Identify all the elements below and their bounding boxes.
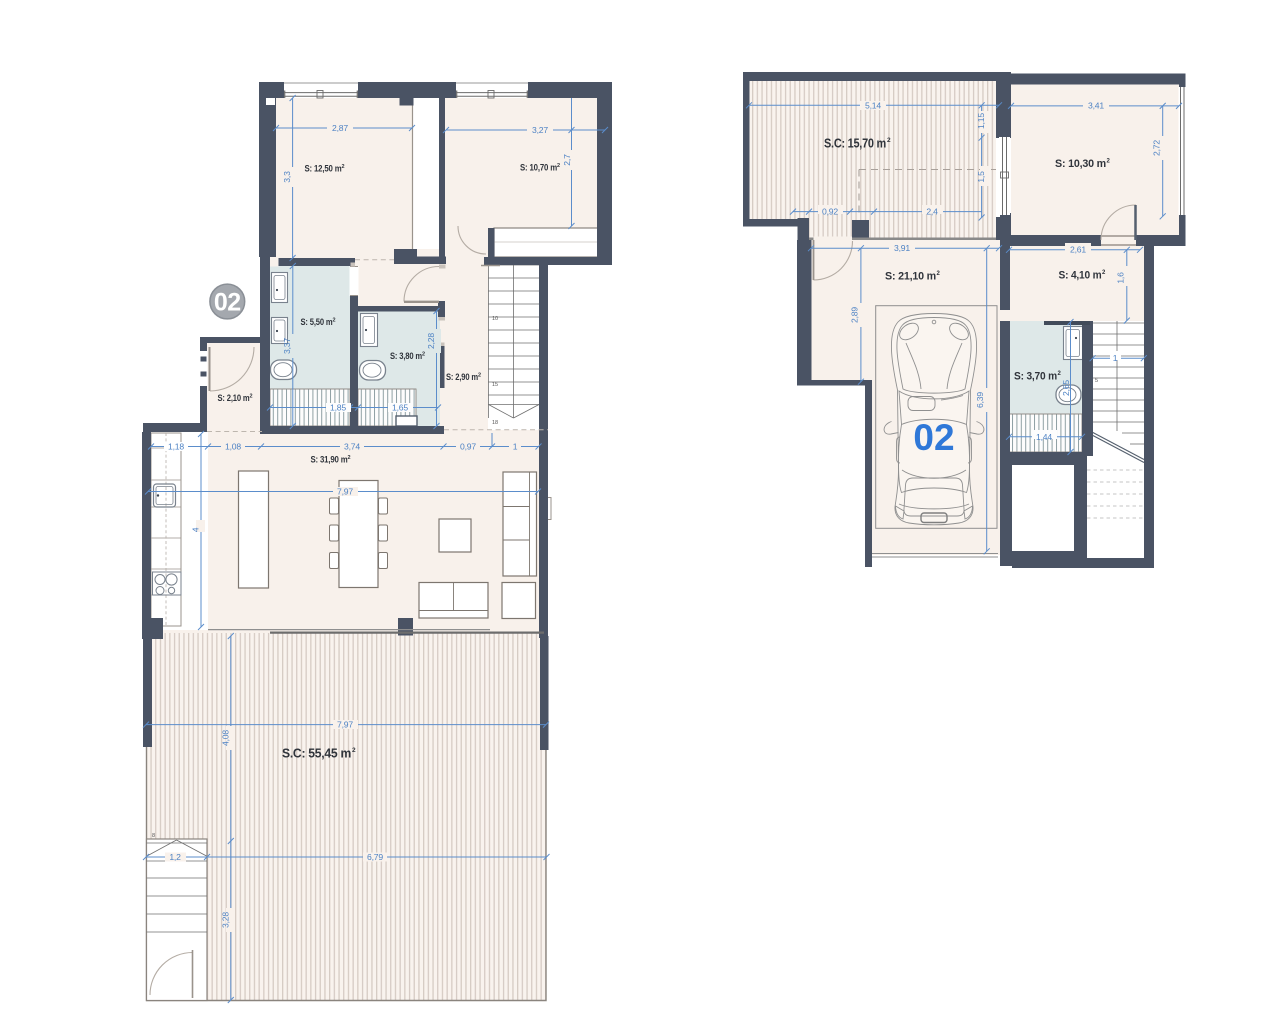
svg-text:1,65: 1,65 [392, 403, 408, 413]
svg-text:S: 21,10 m: S: 21,10 m [885, 270, 936, 282]
svg-text:02: 02 [214, 289, 241, 317]
svg-text:6,79: 6,79 [367, 852, 383, 862]
svg-text:2: 2 [333, 318, 336, 324]
svg-text:S: 3,70 m: S: 3,70 m [1014, 370, 1057, 382]
svg-text:S.C: 15,70 m: S.C: 15,70 m [824, 135, 886, 150]
svg-text:2,65: 2,65 [1061, 380, 1071, 396]
svg-text:1,2: 1,2 [169, 852, 181, 862]
svg-text:7,97: 7,97 [337, 487, 353, 497]
svg-text:1,18: 1,18 [168, 442, 184, 452]
svg-text:S: 10,30 m: S: 10,30 m [1055, 158, 1106, 170]
svg-text:8: 8 [152, 833, 155, 839]
svg-text:2,89: 2,89 [849, 307, 859, 323]
svg-text:2,4: 2,4 [926, 206, 938, 216]
svg-text:10: 10 [492, 316, 498, 322]
svg-text:S: 10,70 m: S: 10,70 m [520, 163, 557, 174]
svg-text:3,27: 3,27 [532, 125, 548, 135]
svg-text:S.C: 55,45 m: S.C: 55,45 m [282, 746, 351, 761]
svg-text:2,61: 2,61 [1070, 244, 1086, 254]
svg-text:2: 2 [422, 351, 425, 357]
svg-text:S: 4,10 m: S: 4,10 m [1059, 270, 1102, 282]
svg-text:S: 5,50 m: S: 5,50 m [301, 317, 333, 328]
svg-text:2: 2 [557, 163, 560, 169]
svg-text:3,41: 3,41 [1088, 101, 1104, 111]
svg-text:S: 3,80 m: S: 3,80 m [390, 351, 422, 362]
svg-text:15: 15 [492, 382, 498, 388]
svg-text:3,74: 3,74 [344, 442, 360, 452]
svg-text:1,44: 1,44 [1036, 432, 1052, 442]
svg-text:S: 2,10 m: S: 2,10 m [218, 393, 250, 404]
svg-text:2,28: 2,28 [426, 333, 436, 349]
svg-text:1: 1 [513, 442, 518, 452]
svg-text:2,87: 2,87 [332, 123, 348, 133]
svg-text:2: 2 [342, 164, 345, 170]
svg-text:0,92: 0,92 [822, 206, 838, 216]
svg-text:2: 2 [348, 455, 351, 461]
svg-text:18: 18 [492, 420, 498, 426]
svg-text:S: 2,90 m: S: 2,90 m [446, 372, 478, 383]
svg-text:1,85: 1,85 [330, 403, 346, 413]
svg-text:1,08: 1,08 [225, 442, 241, 452]
svg-text:2: 2 [250, 393, 253, 399]
svg-text:3,37: 3,37 [282, 338, 292, 354]
svg-text:2,72: 2,72 [1151, 140, 1161, 156]
svg-text:02: 02 [913, 417, 954, 458]
svg-text:S: 12,50 m: S: 12,50 m [305, 164, 342, 175]
svg-text:5: 5 [1095, 378, 1098, 384]
svg-text:3,91: 3,91 [894, 243, 910, 253]
svg-text:0,97: 0,97 [460, 442, 476, 452]
svg-text:7,97: 7,97 [337, 720, 353, 730]
svg-text:1,6: 1,6 [1115, 272, 1125, 284]
svg-text:6,39: 6,39 [975, 392, 985, 408]
svg-text:5,14: 5,14 [865, 101, 881, 111]
svg-text:4: 4 [191, 527, 201, 532]
svg-text:1,5: 1,5 [976, 171, 986, 183]
svg-text:1,15: 1,15 [976, 113, 986, 129]
svg-text:3,28: 3,28 [221, 912, 231, 928]
svg-text:3,3: 3,3 [282, 171, 292, 183]
svg-text:4,08: 4,08 [221, 730, 231, 746]
svg-text:S: 31,90 m: S: 31,90 m [311, 455, 348, 466]
svg-text:2: 2 [478, 373, 481, 379]
svg-text:2,7: 2,7 [562, 154, 572, 166]
svg-text:1: 1 [1113, 353, 1118, 363]
